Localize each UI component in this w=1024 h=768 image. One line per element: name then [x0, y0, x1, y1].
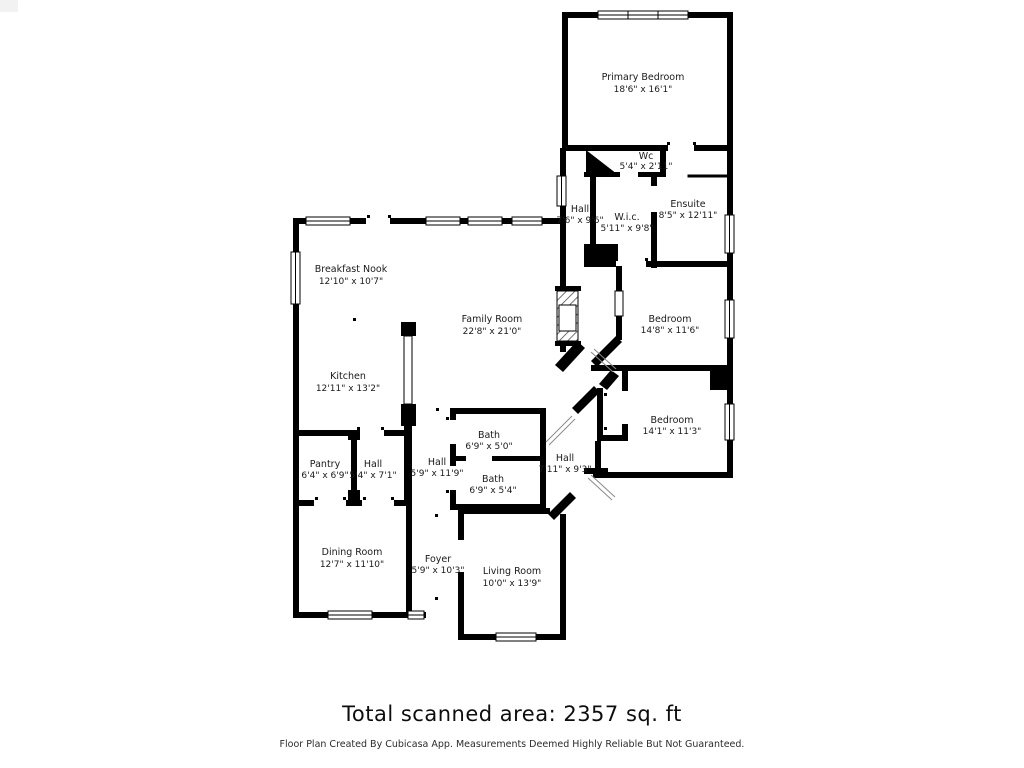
door-opening	[362, 500, 394, 506]
door-opening	[356, 430, 384, 436]
room-label-breakfast-nook: Breakfast Nook	[315, 264, 388, 275]
kitchen-counter	[404, 336, 412, 404]
room-label-family-room: Family Room	[462, 314, 523, 325]
wall-diagonal	[586, 150, 617, 174]
wall-diagonal	[572, 386, 600, 414]
door-opening	[620, 172, 638, 177]
room-dims-suite-hall: 7'6" x 9'6"	[556, 216, 603, 226]
room-dims-ensuite: 8'5" x 12'11"	[659, 211, 718, 221]
floor-plan-page: Primary Bedroom 18'6" x 16'1" Wc 5'4" x …	[0, 0, 1024, 768]
wall	[560, 514, 566, 640]
room-label-bedroom-2: Bedroom	[651, 415, 694, 426]
room-dims-hall-small: 5'4" x 7'1"	[349, 471, 396, 481]
room-dims-pantry: 6'4" x 6'9"	[301, 471, 348, 481]
wall	[401, 322, 416, 336]
wall	[616, 266, 622, 291]
wall	[450, 408, 546, 414]
room-label-wc: Wc	[639, 151, 654, 162]
room-dims-wic: 5'11" x 9'8"	[601, 224, 654, 234]
window	[598, 11, 688, 19]
vanity-line	[688, 175, 728, 177]
total-scanned-area: Total scanned area: 2357 sq. ft	[0, 702, 1024, 726]
window	[512, 217, 542, 225]
room-dims-foyer: 5'9" x 10'3"	[412, 566, 465, 576]
room-label-pantry: Pantry	[310, 459, 341, 470]
wall	[348, 490, 360, 502]
wall	[660, 145, 666, 177]
room-label-living-room: Living Room	[483, 566, 541, 577]
room-dims-hall-rear: 7'11" x 9'3"	[539, 465, 592, 475]
wall	[584, 261, 733, 267]
door-swing	[546, 416, 575, 445]
door-opening	[450, 420, 456, 444]
room-label-bedroom-1: Bedroom	[649, 314, 692, 325]
window	[306, 217, 350, 225]
room-label-foyer: Foyer	[425, 554, 451, 565]
wall	[590, 172, 596, 252]
room-label-dining-room: Dining Room	[322, 547, 383, 558]
room-dims-wc: 5'4" x 2'11"	[620, 162, 673, 172]
wall	[462, 508, 550, 514]
wall-diagonal	[599, 370, 619, 390]
fireplace	[555, 286, 581, 346]
room-label-suite-hall: Hall	[571, 204, 589, 215]
wall	[348, 430, 360, 440]
window	[557, 176, 566, 206]
wall	[710, 365, 733, 390]
room-label-ensuite: Ensuite	[670, 199, 705, 210]
disclaimer-text: Floor Plan Created By Cubicasa App. Meas…	[0, 739, 1024, 750]
room-dims-bath-1: 6'9" x 5'0"	[465, 442, 512, 452]
room-dims-primary-bedroom: 18'6" x 16'1"	[614, 85, 673, 95]
room-label-kitchen: Kitchen	[330, 371, 366, 382]
wall-diagonal	[591, 336, 622, 367]
room-dims-dining-room: 12'7" x 11'10"	[320, 560, 384, 570]
room-label-bath-1: Bath	[478, 430, 500, 441]
room-label-hall-corridor: Hall	[428, 457, 446, 468]
wall	[622, 365, 628, 391]
room-dims-living-room: 10'0" x 13'9"	[483, 579, 542, 589]
room-label-wic: W.i.c.	[614, 212, 639, 223]
door-opening	[668, 145, 694, 151]
wall	[622, 424, 628, 441]
room-dims-hall-corridor: 5'9" x 11'9"	[411, 469, 464, 479]
room-label-bath-2: Bath	[482, 474, 504, 485]
room-dims-bath-2: 6'9" x 5'4"	[469, 486, 516, 496]
room-label-hall-small: Hall	[364, 459, 382, 470]
wall	[458, 572, 464, 640]
window	[328, 611, 372, 619]
window	[725, 404, 734, 440]
wall	[560, 346, 566, 352]
window	[468, 217, 502, 225]
wall	[593, 472, 733, 478]
door-opening	[314, 500, 346, 506]
room-dims-family-room: 22'8" x 21'0"	[463, 327, 522, 337]
window	[496, 633, 536, 641]
door-opening	[466, 456, 492, 461]
window	[725, 300, 734, 338]
wall	[450, 456, 546, 461]
room-dims-breakfast-nook: 12'10" x 10'7"	[319, 277, 383, 287]
window	[426, 217, 460, 225]
room-label-primary-bedroom: Primary Bedroom	[602, 72, 685, 83]
room-dims-bedroom-2: 14'1" x 11'3"	[643, 427, 702, 437]
window	[408, 611, 424, 619]
wall	[401, 404, 416, 426]
room-label-hall-rear: Hall	[556, 453, 574, 464]
door-opening	[651, 186, 657, 212]
wall	[404, 426, 412, 504]
wall	[616, 316, 622, 340]
window	[725, 215, 734, 253]
wall	[562, 12, 568, 148]
wall	[406, 502, 412, 618]
window	[291, 252, 300, 304]
room-dims-kitchen: 12'11" x 13'2"	[316, 384, 380, 394]
door-swing	[588, 475, 615, 500]
pocket-door	[615, 291, 623, 316]
room-dims-bedroom-1: 14'8" x 11'6"	[641, 326, 700, 336]
floor-plan-drawing: Primary Bedroom 18'6" x 16'1" Wc 5'4" x …	[0, 0, 1024, 768]
wall	[597, 388, 603, 440]
wall-opening	[366, 218, 390, 224]
